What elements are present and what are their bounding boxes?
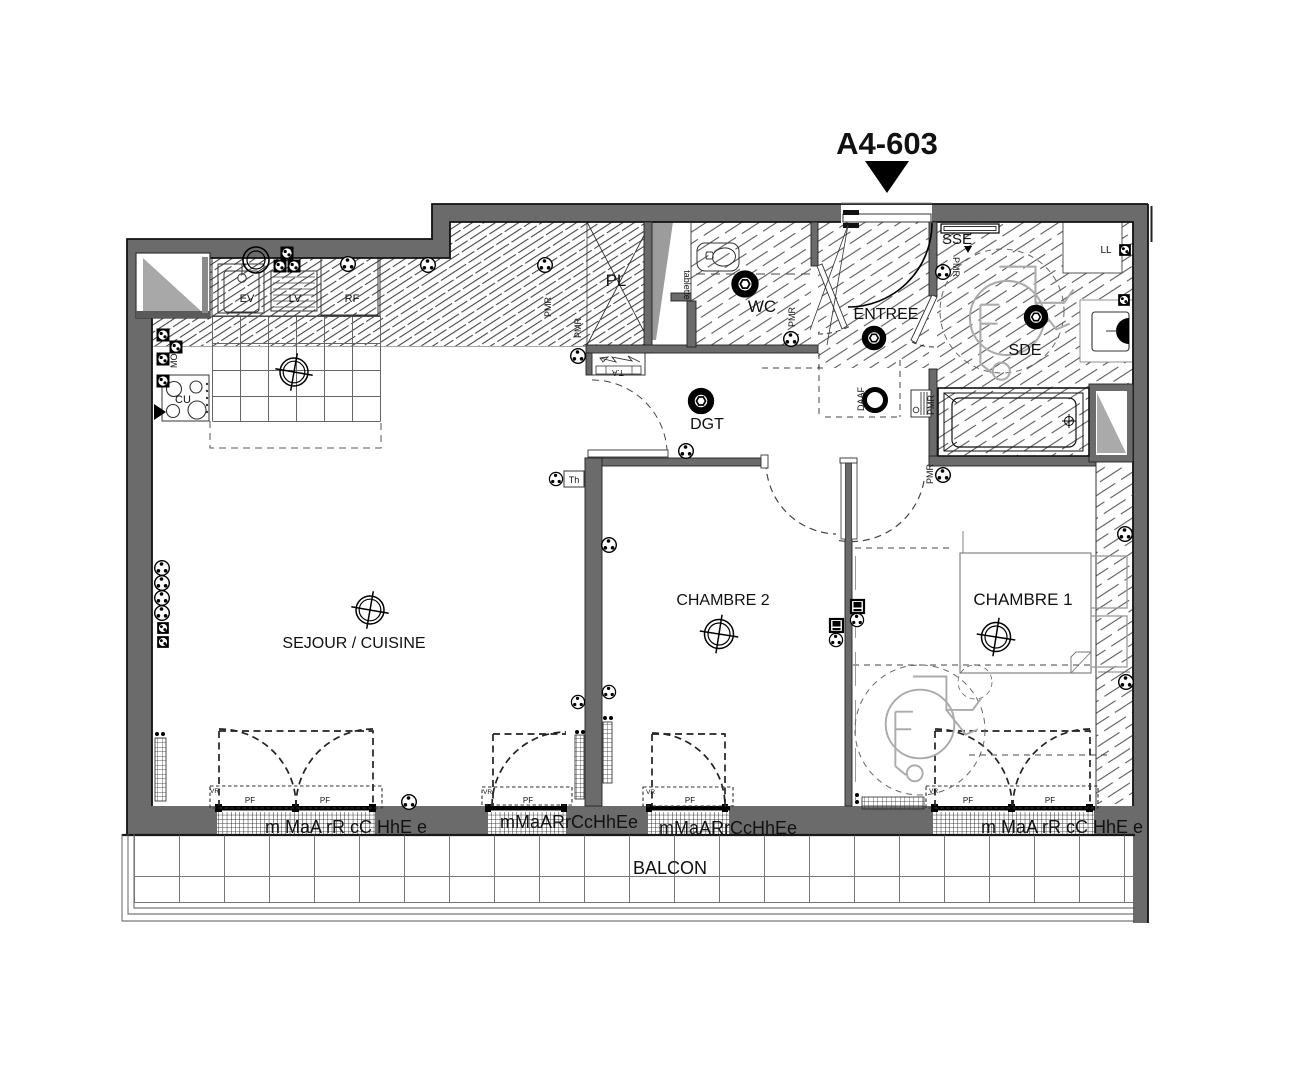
svg-text:VR: VR [929, 788, 938, 795]
svg-text:PMR: PMR [543, 297, 553, 318]
svg-text:CHAMBRE 2: CHAMBRE 2 [676, 592, 769, 609]
svg-text:VR: VR [646, 789, 655, 796]
svg-text:PF: PF [1045, 796, 1055, 805]
svg-text:SEJOUR / CUISINE: SEJOUR / CUISINE [282, 635, 425, 652]
svg-text:SSE: SSE [942, 231, 972, 248]
svg-text:CU: CU [175, 394, 191, 406]
svg-text:PF: PF [685, 796, 695, 805]
svg-text:PF: PF [245, 796, 255, 805]
svg-text:VR: VR [483, 789, 492, 796]
svg-text:EV: EV [240, 293, 255, 305]
svg-text:PF: PF [963, 796, 973, 805]
svg-text:PMR: PMR [951, 257, 961, 278]
svg-text:ENTREE: ENTREE [854, 306, 919, 323]
svg-text:LV: LV [289, 293, 302, 305]
svg-text:VR: VR [210, 788, 219, 795]
svg-text:DGT: DGT [690, 416, 724, 433]
svg-text:PL: PL [606, 271, 627, 290]
svg-text:WC: WC [748, 297, 776, 316]
svg-text:RF: RF [345, 293, 360, 305]
svg-text:m MaA rR cC HhE e: m MaA rR cC HhE e [981, 817, 1143, 837]
svg-text:PMR: PMR [926, 395, 936, 416]
svg-text:PMR: PMR [573, 318, 583, 339]
svg-text:BALCON: BALCON [633, 858, 707, 878]
svg-text:DAAF: DAAF [856, 386, 866, 411]
svg-text:A4-603: A4-603 [836, 126, 938, 161]
svg-text:m MaA rR cC HhE e: m MaA rR cC HhE e [265, 817, 427, 837]
svg-text:LL: LL [1100, 245, 1112, 256]
svg-text:mMaARrCcHhEe: mMaARrCcHhEe [500, 812, 638, 832]
svg-text:tablette: tablette [682, 270, 692, 300]
svg-text:PMR: PMR [925, 464, 935, 485]
svg-text:PMR: PMR [787, 307, 797, 328]
svg-text:T.A: T.A [612, 368, 624, 377]
svg-text:CHAMBRE 1: CHAMBRE 1 [973, 590, 1072, 609]
svg-text:MO: MO [169, 354, 179, 369]
svg-text:mMaARrCcHhEe: mMaARrCcHhEe [659, 818, 797, 838]
svg-text:PF: PF [523, 796, 533, 805]
svg-text:Th: Th [569, 475, 580, 485]
svg-text:SDE: SDE [1009, 342, 1042, 359]
svg-text:PF: PF [320, 796, 330, 805]
